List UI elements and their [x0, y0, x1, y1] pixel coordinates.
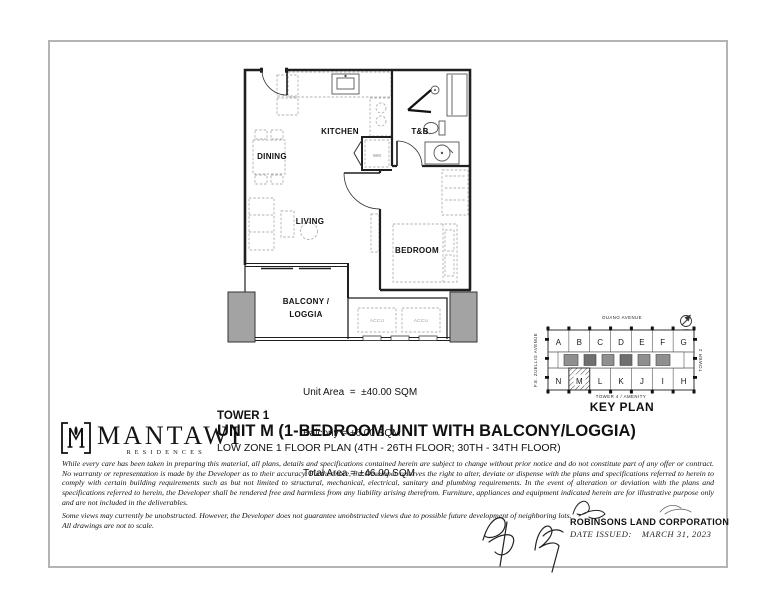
- unit-title: UNIT M (1-BEDROOM UNIT WITH BALCONY/LOGG…: [217, 422, 636, 441]
- svg-text:G: G: [680, 338, 686, 347]
- tower2-label: TOWER 2: [698, 348, 703, 371]
- room-label-balcony-2: LOGGIA: [289, 310, 322, 319]
- document-page: KITCHEN DINING T&B LIVING BEDROOM BALCON…: [0, 0, 768, 593]
- label-washing-machine: WM: [373, 153, 381, 158]
- svg-text:N: N: [556, 377, 562, 386]
- label-accu-left: ACCU: [370, 318, 384, 323]
- room-label-kitchen: KITCHEN: [321, 127, 359, 136]
- street-label-top: OUANO AVENUE: [602, 315, 642, 320]
- brand-subtitle: RESIDENCES: [100, 449, 232, 456]
- svg-text:L: L: [598, 377, 603, 386]
- signature-icon: [483, 518, 514, 566]
- date-issued: DATE ISSUED:MARCH 31, 2023: [570, 529, 721, 539]
- floor-range-subtitle: LOW ZONE 1 FLOOR PLAN (4TH - 26TH FLOOR;…: [217, 442, 561, 454]
- signature-icon: [535, 526, 563, 572]
- walls: [228, 68, 477, 342]
- key-plan-title: KEY PLAN: [558, 400, 686, 414]
- svg-text:D: D: [618, 338, 624, 347]
- company-name: ROBINSONS LAND CORPORATION: [570, 517, 729, 527]
- scale-note: All drawings are not to scale.: [62, 521, 154, 530]
- svg-text:K: K: [618, 377, 624, 386]
- unit-area-line: Unit Area = ±40.00 SQM: [303, 386, 417, 400]
- svg-text:H: H: [681, 377, 687, 386]
- svg-text:J: J: [640, 377, 644, 386]
- brand-logo-icon: [58, 420, 94, 456]
- room-label-toilet-bath: T&B: [411, 127, 428, 136]
- floor-plan: KITCHEN DINING T&B LIVING BEDROOM BALCON…: [225, 58, 480, 353]
- street-label-left: F.E. ZUELLIG AVENUE: [533, 333, 538, 387]
- room-label-balcony-1: BALCONY /: [283, 297, 330, 306]
- svg-text:B: B: [577, 338, 582, 347]
- column: [450, 292, 477, 342]
- svg-text:F: F: [660, 338, 665, 347]
- north-arrow-icon: NORTH: [681, 315, 692, 333]
- room-label-living: LIVING: [296, 217, 324, 226]
- signature-icon: [573, 501, 605, 518]
- svg-text:E: E: [639, 338, 644, 347]
- svg-text:C: C: [597, 338, 603, 347]
- tower-title: TOWER 1: [217, 410, 269, 422]
- bathroom-fixtures: [332, 74, 467, 164]
- date-issued-value: MARCH 31, 2023: [642, 529, 712, 539]
- date-issued-label: DATE ISSUED:: [570, 529, 632, 539]
- room-label-bedroom: BEDROOM: [395, 246, 439, 255]
- column: [228, 292, 255, 342]
- room-label-dining: DINING: [257, 152, 287, 161]
- signature-icon: [660, 505, 691, 514]
- label-accu-right: ACCU: [414, 318, 428, 323]
- svg-text:A: A: [556, 338, 562, 347]
- tower4-amenity-label: TOWER 4 / AMENITY: [596, 394, 646, 399]
- highlighted-unit-letter: M: [576, 377, 583, 386]
- svg-text:I: I: [662, 377, 664, 386]
